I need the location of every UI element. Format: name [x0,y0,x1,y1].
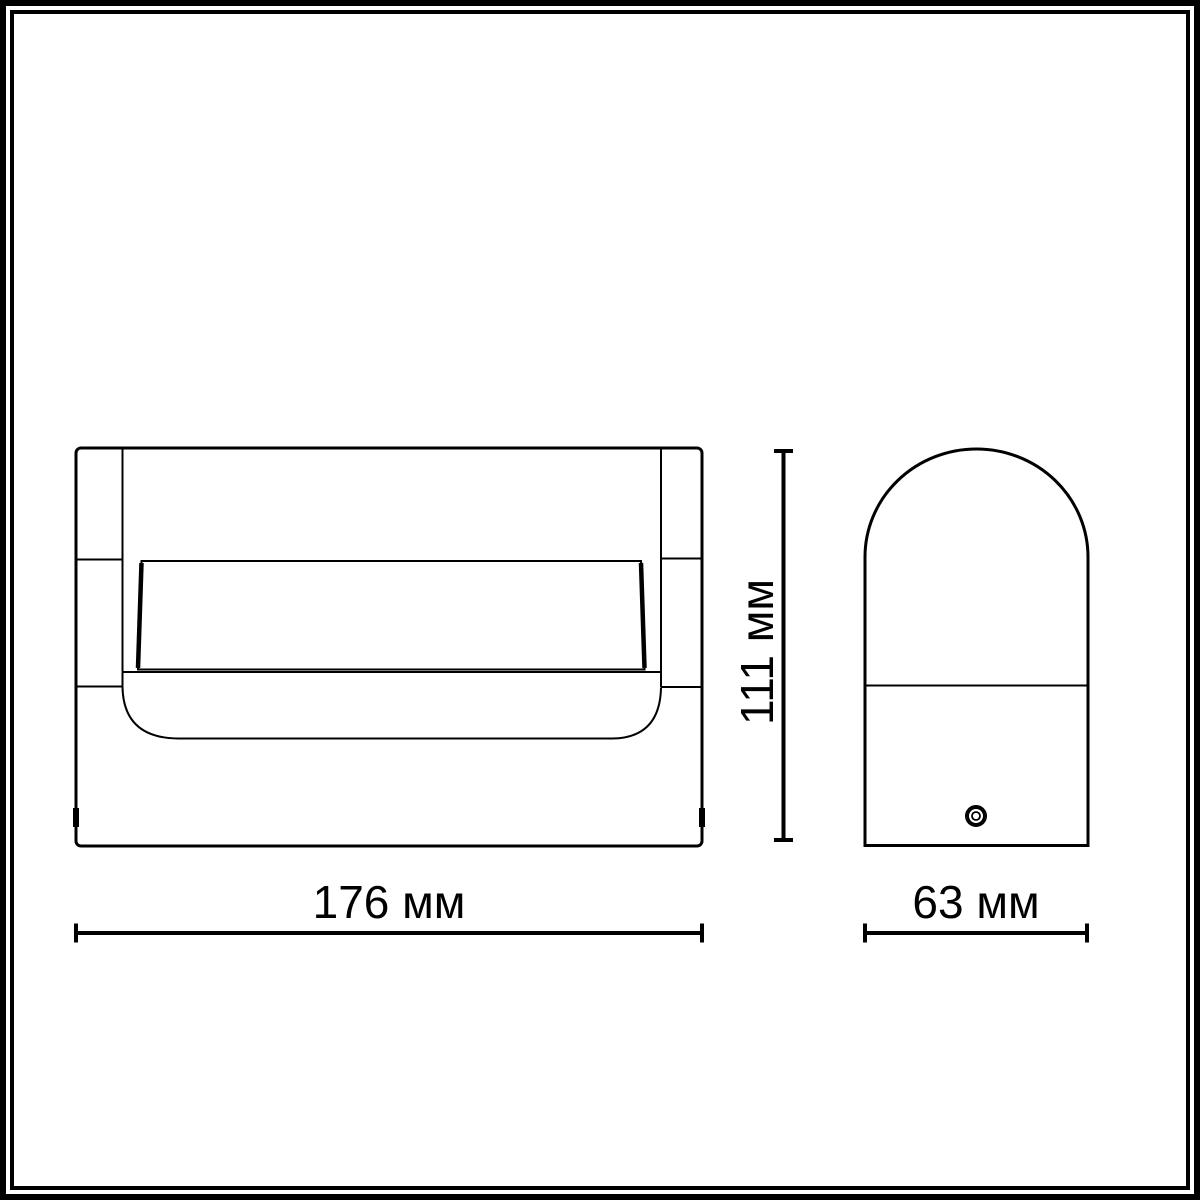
page-background [0,0,1200,1200]
technical-drawing-canvas: 176 мм 63 мм 111 мм [0,0,1200,1200]
mounting-notch-left [73,808,79,827]
mounting-notch-right [699,808,705,827]
width-dimension-label: 176 мм [313,876,466,928]
depth-dimension-label: 63 мм [912,876,1039,928]
height-dimension-label: 111 мм [731,579,783,725]
